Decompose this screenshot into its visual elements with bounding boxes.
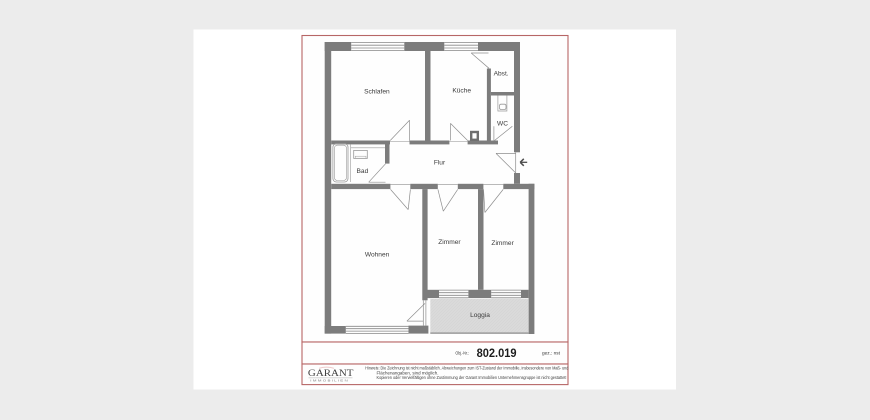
svg-text:Kopieren oder Vervielfältigen: Kopieren oder Vervielfältigen ohne Zusti… <box>377 375 567 380</box>
svg-text:GARANT: GARANT <box>308 369 354 379</box>
svg-text:Schlafen: Schlafen <box>364 89 390 96</box>
svg-text:Obj.-Nr.:: Obj.-Nr.: <box>455 350 469 356</box>
svg-text:WC: WC <box>497 120 508 127</box>
svg-text:I M M O B I L I E N: I M M O B I L I E N <box>310 378 347 382</box>
svg-text:Küche: Küche <box>452 87 471 94</box>
svg-text:Zimmer: Zimmer <box>438 239 461 246</box>
svg-text:802.019: 802.019 <box>477 347 518 360</box>
svg-text:Wohnen: Wohnen <box>365 252 390 259</box>
svg-text:Zimmer: Zimmer <box>491 240 514 247</box>
svg-text:Bad: Bad <box>357 168 369 175</box>
svg-text:Loggia: Loggia <box>470 312 490 319</box>
svg-text:gez.: nst: gez.: nst <box>542 351 561 356</box>
svg-text:Abst.: Abst. <box>494 70 509 77</box>
svg-text:Flur: Flur <box>434 159 446 166</box>
